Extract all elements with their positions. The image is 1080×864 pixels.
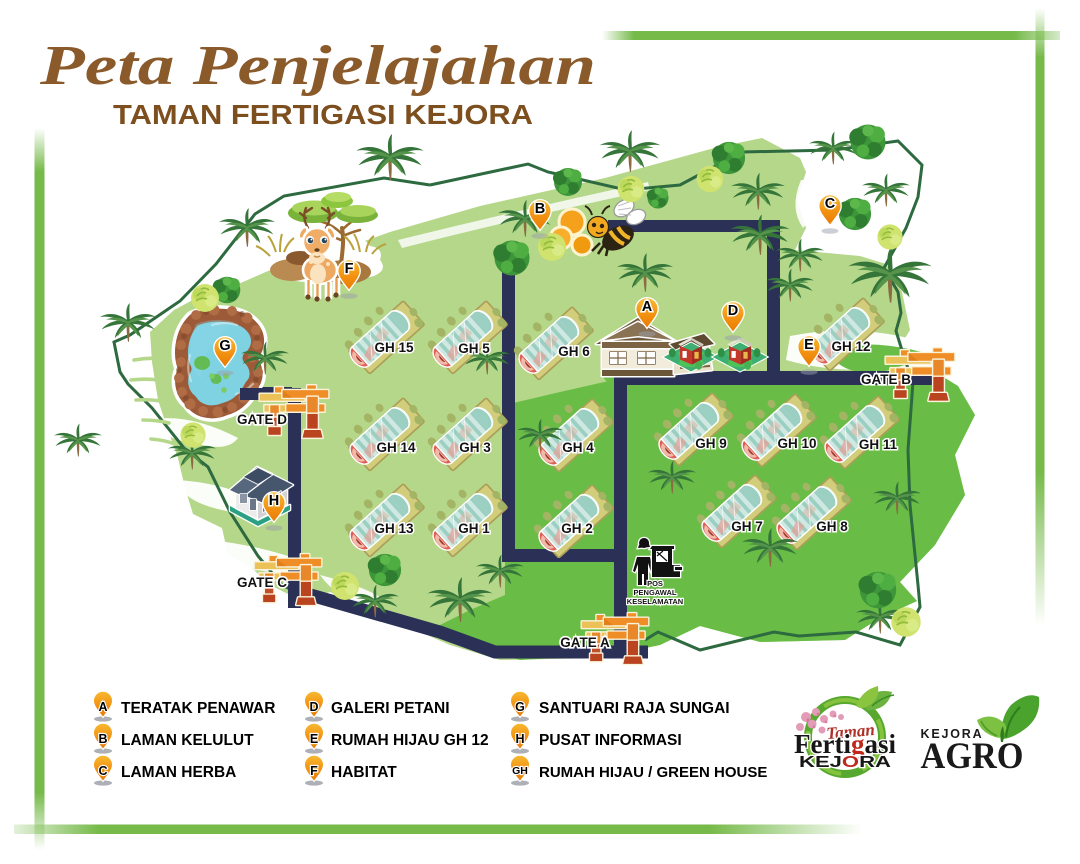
svg-text:GH 6: GH 6 xyxy=(558,344,590,359)
svg-text:POS: POS xyxy=(647,579,663,588)
svg-text:GH 10: GH 10 xyxy=(777,436,816,451)
svg-text:G: G xyxy=(219,338,230,354)
svg-text:GH 8: GH 8 xyxy=(816,519,848,534)
svg-text:GH 1: GH 1 xyxy=(458,521,490,536)
svg-text:GATE D: GATE D xyxy=(237,412,287,427)
svg-text:GH 15: GH 15 xyxy=(374,340,414,355)
svg-text:GH 13: GH 13 xyxy=(374,521,414,536)
svg-text:PUSAT INFORMASI: PUSAT INFORMASI xyxy=(539,732,682,749)
svg-text:B: B xyxy=(98,732,107,746)
svg-text:GH 3: GH 3 xyxy=(459,440,491,455)
svg-text:GH 12: GH 12 xyxy=(831,339,870,354)
svg-text:H: H xyxy=(515,732,524,746)
svg-text:E: E xyxy=(804,337,814,353)
svg-text:A: A xyxy=(642,299,653,315)
svg-text:G: G xyxy=(515,700,525,714)
svg-text:E: E xyxy=(310,732,318,746)
svg-text:GH 11: GH 11 xyxy=(859,437,898,452)
svg-text:GH 7: GH 7 xyxy=(731,519,763,534)
svg-text:H: H xyxy=(269,493,279,509)
svg-text:F: F xyxy=(345,261,354,277)
svg-text:TAMAN FERTIGASI KEJORA: TAMAN FERTIGASI KEJORA xyxy=(113,99,533,130)
svg-text:AGRO: AGRO xyxy=(921,736,1024,777)
svg-text:GH 4: GH 4 xyxy=(562,440,594,455)
svg-text:GATE C: GATE C xyxy=(237,575,287,590)
svg-text:F: F xyxy=(310,764,318,778)
svg-text:B: B xyxy=(535,201,545,217)
svg-text:GH 14: GH 14 xyxy=(376,440,416,455)
svg-text:RUMAH HIJAU / GREEN HOUSE: RUMAH HIJAU / GREEN HOUSE xyxy=(539,764,767,781)
svg-text:GATE B: GATE B xyxy=(861,372,911,387)
svg-text:GH 9: GH 9 xyxy=(695,436,727,451)
svg-text:GH 5: GH 5 xyxy=(458,341,490,356)
svg-text:HABITAT: HABITAT xyxy=(331,764,397,781)
svg-text:SANTUARI RAJA SUNGAI: SANTUARI RAJA SUNGAI xyxy=(539,700,730,717)
svg-text:A: A xyxy=(98,700,107,714)
svg-text:KESELAMATAN: KESELAMATAN xyxy=(627,597,683,606)
svg-text:LAMAN KELULUT: LAMAN KELULUT xyxy=(121,732,254,749)
svg-text:GATE A: GATE A xyxy=(560,635,610,650)
svg-text:RUMAH HIJAU GH 12: RUMAH HIJAU GH 12 xyxy=(331,732,489,749)
svg-text:C: C xyxy=(98,764,107,778)
svg-text:GH 2: GH 2 xyxy=(561,521,593,536)
svg-text:PENGAWAL: PENGAWAL xyxy=(634,588,677,597)
svg-text:KEJORA: KEJORA xyxy=(799,754,892,771)
svg-text:D: D xyxy=(309,700,318,714)
svg-text:C: C xyxy=(825,196,836,212)
svg-text:D: D xyxy=(728,303,738,319)
svg-text:GALERI PETANI: GALERI PETANI xyxy=(331,700,450,717)
svg-text:LAMAN HERBA: LAMAN HERBA xyxy=(121,764,236,781)
svg-text:TERATAK PENAWAR: TERATAK PENAWAR xyxy=(121,700,275,717)
svg-text:GH: GH xyxy=(512,765,528,777)
svg-text:Peta Penjelajahan: Peta Penjelajahan xyxy=(39,35,596,97)
